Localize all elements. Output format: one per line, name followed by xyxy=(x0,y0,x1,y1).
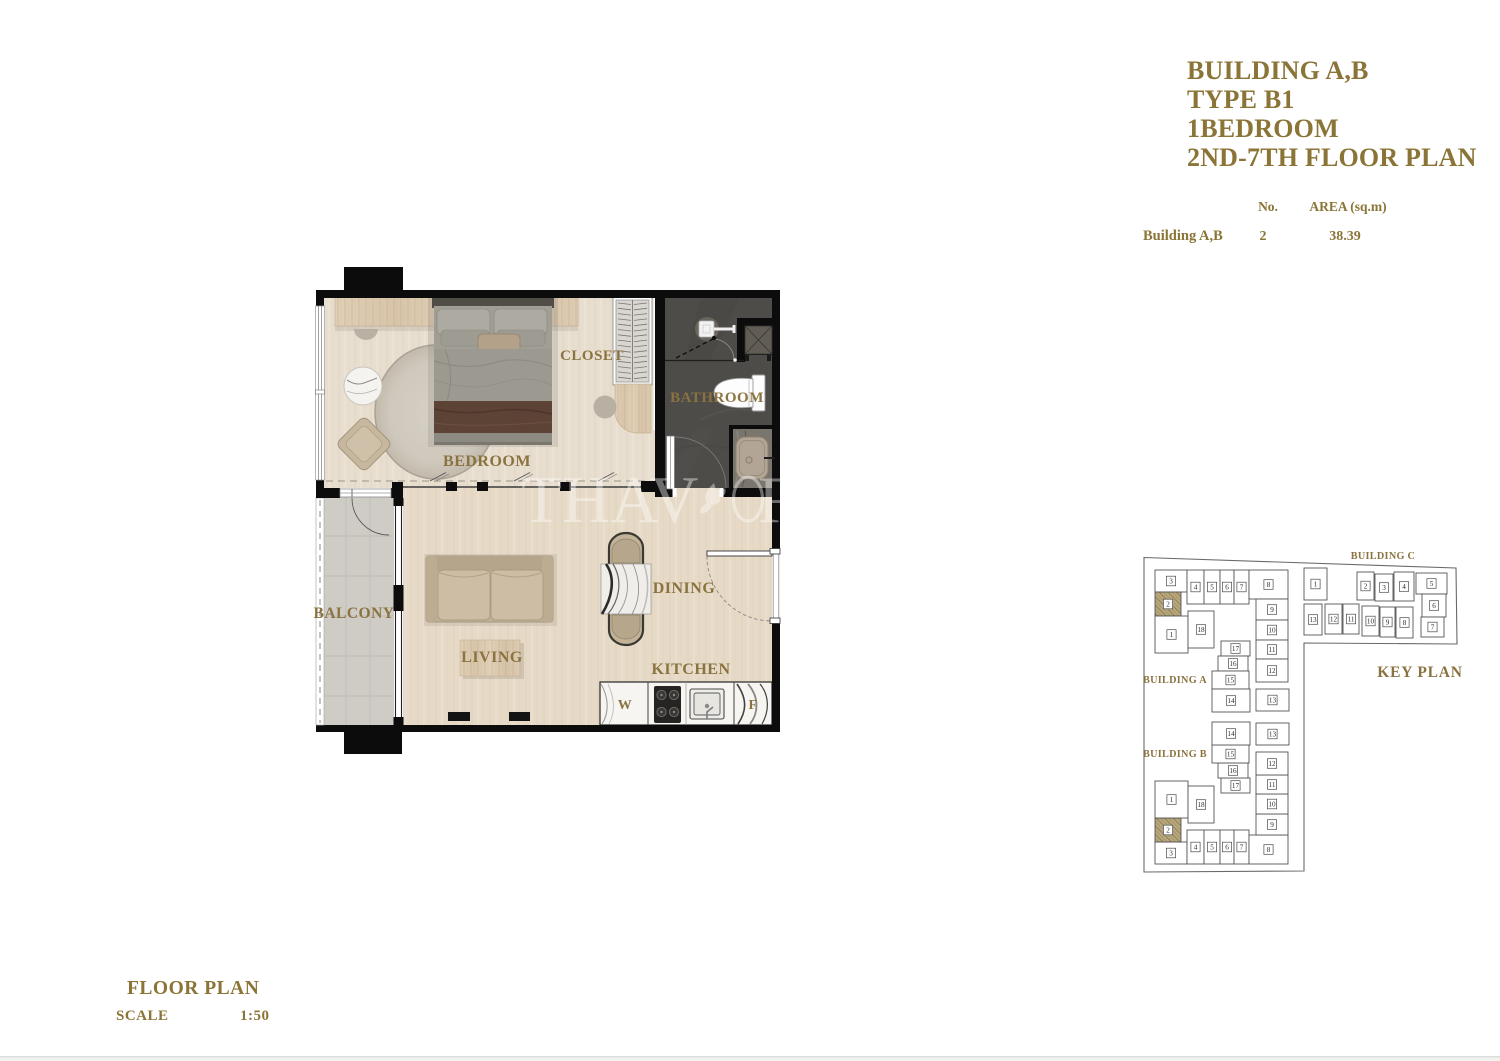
svg-text:10: 10 xyxy=(1268,801,1276,809)
svg-text:2: 2 xyxy=(1260,229,1267,244)
svg-text:12: 12 xyxy=(1268,760,1276,768)
svg-text:7: 7 xyxy=(1431,624,1435,632)
svg-text:BEDROOM: BEDROOM xyxy=(443,453,531,470)
svg-text:5: 5 xyxy=(1430,580,1434,588)
svg-text:3: 3 xyxy=(1169,850,1173,858)
svg-text:38.39: 38.39 xyxy=(1329,229,1361,244)
svg-text:15: 15 xyxy=(1227,677,1235,685)
svg-text:BUILDING C: BUILDING C xyxy=(1351,551,1415,562)
svg-text:2: 2 xyxy=(1364,583,1368,591)
svg-text:THAV: THAV xyxy=(521,463,698,537)
svg-text:Building A,B: Building A,B xyxy=(1143,228,1223,244)
svg-text:9: 9 xyxy=(1270,821,1274,829)
svg-text:9: 9 xyxy=(1386,619,1390,627)
svg-text:7: 7 xyxy=(1240,844,1244,852)
svg-text:13: 13 xyxy=(1269,731,1277,739)
svg-text:14: 14 xyxy=(1227,697,1235,705)
svg-text:DINING: DINING xyxy=(653,580,716,597)
svg-text:10: 10 xyxy=(1268,627,1276,635)
svg-text:10: 10 xyxy=(1367,618,1375,626)
svg-text:AREA (sq.m): AREA (sq.m) xyxy=(1309,199,1386,214)
svg-text:BATHROOM: BATHROOM xyxy=(670,390,764,406)
svg-text:3: 3 xyxy=(1382,584,1386,592)
svg-text:3: 3 xyxy=(1169,578,1173,586)
svg-text:6: 6 xyxy=(1432,602,1436,610)
svg-text:1: 1 xyxy=(1170,796,1174,804)
svg-text:5: 5 xyxy=(1210,584,1214,592)
svg-text:5: 5 xyxy=(1210,844,1214,852)
svg-text:11: 11 xyxy=(1348,616,1355,624)
svg-text:12: 12 xyxy=(1268,667,1276,675)
svg-text:8: 8 xyxy=(1267,581,1271,589)
svg-text:KEY PLAN: KEY PLAN xyxy=(1377,664,1462,681)
svg-text:6: 6 xyxy=(1225,584,1229,592)
svg-text:R: R xyxy=(758,463,803,537)
svg-text:TYPE B1: TYPE B1 xyxy=(1187,85,1295,114)
svg-text:17: 17 xyxy=(1232,645,1240,653)
svg-text:9: 9 xyxy=(1270,606,1274,614)
svg-text:BUILDING A: BUILDING A xyxy=(1143,675,1207,686)
svg-text:7: 7 xyxy=(1240,584,1244,592)
svg-text:1:50: 1:50 xyxy=(240,1008,270,1024)
svg-text:4: 4 xyxy=(1402,583,1406,591)
svg-text:1: 1 xyxy=(1314,581,1318,589)
svg-text:11: 11 xyxy=(1269,646,1276,654)
svg-text:17: 17 xyxy=(1232,782,1240,790)
svg-text:SCALE: SCALE xyxy=(116,1008,169,1024)
svg-text:2: 2 xyxy=(1166,827,1170,835)
svg-text:15: 15 xyxy=(1227,751,1235,759)
svg-text:13: 13 xyxy=(1269,697,1277,705)
svg-text:F: F xyxy=(748,698,757,713)
svg-text:1BEDROOM: 1BEDROOM xyxy=(1187,114,1339,143)
svg-text:12: 12 xyxy=(1330,616,1338,624)
svg-text:13: 13 xyxy=(1309,616,1317,624)
svg-text:BUILDING B: BUILDING B xyxy=(1143,749,1207,760)
svg-text:8: 8 xyxy=(1267,846,1271,854)
svg-text:14: 14 xyxy=(1227,730,1235,738)
svg-text:CLOSET: CLOSET xyxy=(560,348,624,364)
svg-text:16: 16 xyxy=(1229,767,1237,775)
svg-text:FLOOR PLAN: FLOOR PLAN xyxy=(127,978,259,999)
svg-text:LIVING: LIVING xyxy=(461,649,523,666)
svg-text:18: 18 xyxy=(1197,626,1205,634)
svg-text:4: 4 xyxy=(1194,844,1198,852)
svg-text:KITCHEN: KITCHEN xyxy=(651,661,730,678)
svg-text:6: 6 xyxy=(1225,844,1229,852)
svg-text:11: 11 xyxy=(1269,781,1276,789)
svg-text:BUILDING A,B: BUILDING A,B xyxy=(1187,56,1369,85)
svg-text:No.: No. xyxy=(1258,199,1278,214)
svg-text:W: W xyxy=(618,698,633,713)
svg-text:4: 4 xyxy=(1194,584,1198,592)
svg-text:BALCONY: BALCONY xyxy=(313,605,394,622)
svg-text:2: 2 xyxy=(1166,601,1170,609)
svg-text:2ND-7TH FLOOR PLAN: 2ND-7TH FLOOR PLAN xyxy=(1187,143,1477,172)
svg-text:1: 1 xyxy=(1170,631,1174,639)
svg-text:18: 18 xyxy=(1197,801,1205,809)
svg-text:16: 16 xyxy=(1229,660,1237,668)
svg-text:8: 8 xyxy=(1403,619,1407,627)
